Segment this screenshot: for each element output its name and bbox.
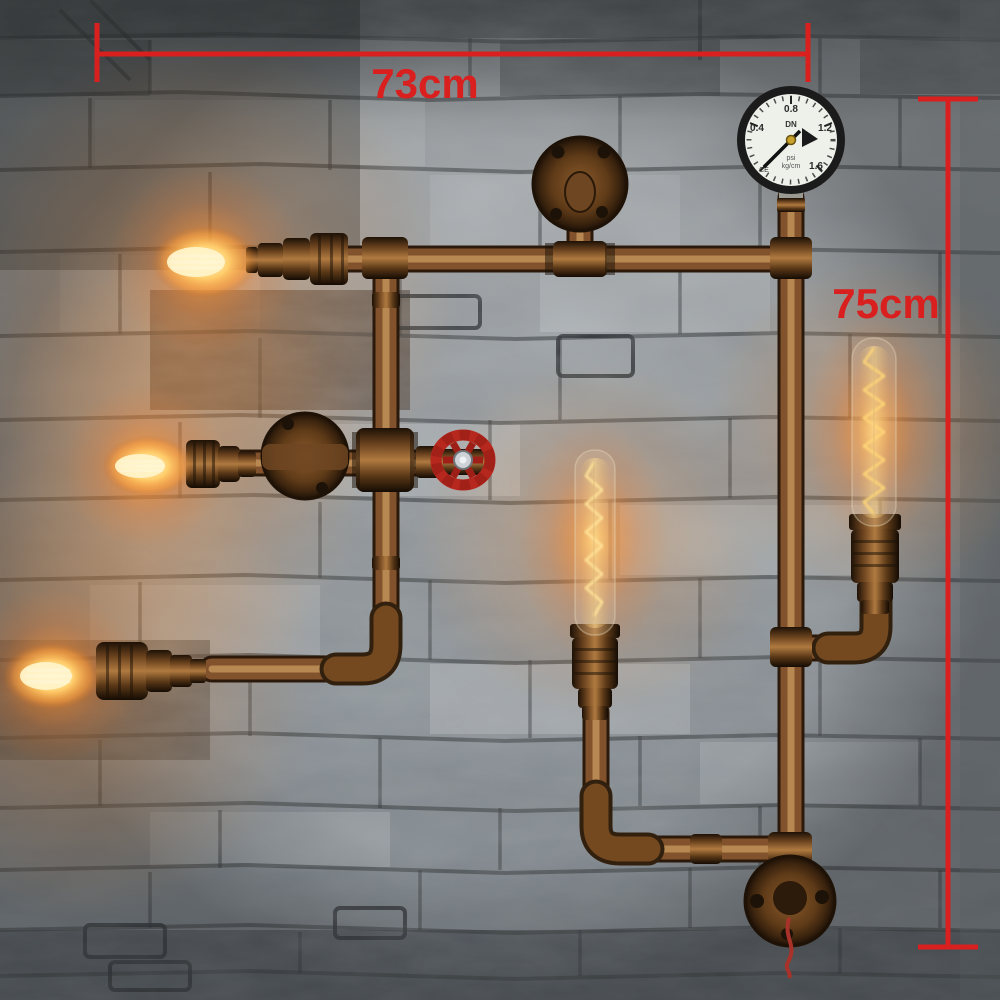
gauge-center-label: DN [785,120,797,129]
tee-top-left [362,237,408,279]
coupling-bottom [690,834,722,864]
industrial-pipe-wall-lamp-photo: 0.4 0.8 1.2 1.6 DN psi kg/cm CE [0,0,1000,1000]
wall-flange-top [533,137,627,231]
tee-right-branch [770,627,812,667]
gauge-unit-psi: psi [787,155,796,162]
gauge-ce-mark: CE [759,167,769,174]
gauge-tick-04: 0.4 [750,123,764,134]
gauge-tick-16: 1.6 [809,161,823,172]
edison-bulb-middle-left [103,436,193,496]
edison-bulb-top-left [153,226,257,298]
tee-flange-stem [553,241,607,277]
wall-flange-middle [262,413,348,499]
gauge-tick-12: 1.2 [818,123,832,134]
edison-bulb-bottom-left [4,643,100,709]
tube-bulb-middle [575,450,615,635]
photo-canvas: 0.4 0.8 1.2 1.6 DN psi kg/cm CE [0,0,1000,1000]
tube-bulb-right [852,338,896,526]
tee-top-right [770,237,812,279]
width-label: 73cm [371,60,478,107]
gauge-tick-08: 0.8 [784,104,798,115]
height-label: 75cm [832,280,939,327]
gauge-unit-kgcm: kg/cm [782,163,801,170]
cross-fitting [356,428,414,492]
